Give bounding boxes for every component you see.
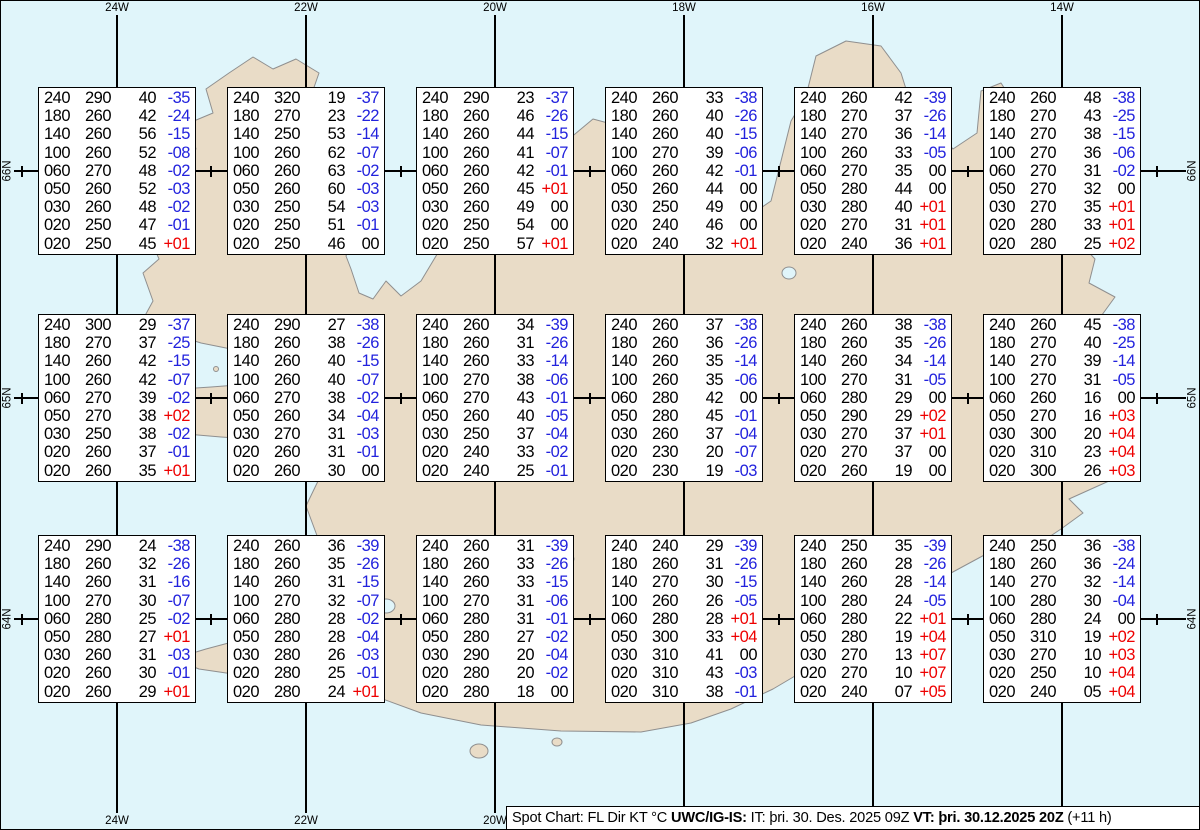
spot-row: 18027043-25 [989, 107, 1135, 125]
wind-dir-cell: 260 [841, 89, 886, 107]
temperature-cell: -16 [156, 573, 190, 591]
wind-speed-cell: 35 [130, 462, 156, 480]
latitude-label-right: 66N [1188, 160, 1199, 181]
flight-level-cell: 100 [44, 371, 85, 389]
flight-level-cell: 060 [233, 389, 274, 407]
wind-speed-cell: 32 [697, 235, 723, 253]
temperature-cell: -04 [345, 407, 379, 425]
spot-row: 03027035+01 [989, 198, 1135, 216]
wind-speed-cell: 38 [130, 407, 156, 425]
wind-dir-cell: 280 [274, 610, 319, 628]
wind-speed-cell: 53 [319, 125, 345, 143]
wind-dir-cell: 260 [274, 144, 319, 162]
spot-row: 24025036-38 [989, 537, 1135, 555]
flight-level-cell: 180 [422, 334, 463, 352]
wind-speed-cell: 20 [697, 443, 723, 461]
temperature-cell: -39 [723, 537, 757, 555]
spot-row: 05026052-03 [44, 180, 190, 198]
wind-speed-cell: 35 [886, 537, 912, 555]
wind-dir-cell: 270 [1030, 646, 1075, 664]
wind-speed-cell: 49 [697, 198, 723, 216]
wind-speed-cell: 30 [130, 592, 156, 610]
flight-level-cell: 020 [989, 235, 1030, 253]
spot-row: 02025051-01 [233, 216, 379, 234]
temperature-cell: -26 [912, 555, 946, 573]
spot-row: 14025053-14 [233, 125, 379, 143]
flight-level-cell: 180 [989, 334, 1030, 352]
flight-level-cell: 140 [233, 352, 274, 370]
wind-dir-cell: 310 [652, 664, 697, 682]
spot-row: 05026040-05 [422, 407, 568, 425]
wind-dir-cell: 260 [1030, 389, 1075, 407]
wind-speed-cell: 07 [886, 683, 912, 701]
wind-dir-cell: 310 [652, 683, 697, 701]
flight-level-cell: 030 [800, 425, 841, 443]
wind-speed-cell: 39 [130, 389, 156, 407]
temperature-cell: -37 [534, 89, 568, 107]
spot-table: 24029024-3818026032-2614026031-161002703… [38, 535, 196, 703]
flight-level-cell: 140 [44, 352, 85, 370]
spot-row: 05029029+02 [800, 407, 946, 425]
spot-row: 03027031-03 [233, 425, 379, 443]
wind-speed-cell: 38 [508, 371, 534, 389]
wind-dir-cell: 280 [841, 592, 886, 610]
temperature-cell: -39 [534, 316, 568, 334]
temperature-cell: -39 [912, 89, 946, 107]
spot-row: 18026035-26 [800, 334, 946, 352]
wind-dir-cell: 260 [85, 144, 130, 162]
flight-level-cell: 180 [422, 555, 463, 573]
wind-speed-cell: 40 [697, 125, 723, 143]
spot-row: 10028024-05 [800, 592, 946, 610]
flight-level-cell: 050 [233, 628, 274, 646]
temperature-cell: -15 [534, 125, 568, 143]
temperature-cell: -05 [1101, 371, 1135, 389]
wind-dir-cell: 260 [85, 180, 130, 198]
temperature-cell: +01 [1101, 216, 1135, 234]
flight-level-cell: 140 [611, 125, 652, 143]
wind-speed-cell: 28 [319, 628, 345, 646]
flight-level-cell: 240 [422, 316, 463, 334]
flight-level-cell: 060 [800, 389, 841, 407]
wind-speed-cell: 31 [508, 592, 534, 610]
spot-row: 02024033-02 [422, 443, 568, 461]
spot-row: 0202505400 [422, 216, 568, 234]
flight-level-cell: 100 [800, 144, 841, 162]
spot-row: 05026060-03 [233, 180, 379, 198]
temperature-cell: -15 [345, 352, 379, 370]
spot-row: 05031019+02 [989, 628, 1135, 646]
spot-row: 06026042-01 [611, 162, 757, 180]
wind-dir-cell: 260 [841, 555, 886, 573]
spot-row: 14026031-15 [233, 573, 379, 591]
spot-row: 02024036+01 [800, 235, 946, 253]
spot-row: 02031043-03 [611, 664, 757, 682]
wind-dir-cell: 230 [652, 462, 697, 480]
flight-level-cell: 030 [233, 198, 274, 216]
spot-row: 24026034-39 [422, 316, 568, 334]
flight-level-cell: 140 [800, 125, 841, 143]
wind-speed-cell: 44 [886, 180, 912, 198]
flight-level-cell: 050 [44, 407, 85, 425]
wind-dir-cell: 260 [463, 537, 508, 555]
temperature-cell: -26 [534, 334, 568, 352]
temperature-cell: -03 [723, 462, 757, 480]
flight-level-cell: 100 [989, 371, 1030, 389]
temperature-cell: -02 [156, 389, 190, 407]
spot-row: 24029040-35 [44, 89, 190, 107]
wind-dir-cell: 280 [652, 389, 697, 407]
half-degree-tick [589, 614, 591, 625]
wind-dir-cell: 270 [1030, 407, 1075, 425]
flight-level-cell: 140 [44, 125, 85, 143]
wind-dir-cell: 270 [1030, 352, 1075, 370]
temperature-cell: 00 [1101, 180, 1135, 198]
wind-speed-cell: 25 [508, 462, 534, 480]
wind-speed-cell: 34 [319, 407, 345, 425]
wind-dir-cell: 270 [1030, 371, 1075, 389]
flight-level-cell: 240 [422, 537, 463, 555]
wind-dir-cell: 240 [463, 462, 508, 480]
wind-speed-cell: 25 [1075, 235, 1101, 253]
wind-speed-cell: 31 [130, 573, 156, 591]
flight-level-cell: 180 [44, 334, 85, 352]
temperature-cell: +03 [1101, 462, 1135, 480]
temperature-cell: -26 [156, 555, 190, 573]
wind-dir-cell: 260 [463, 573, 508, 591]
spot-row: 02027031+01 [800, 216, 946, 234]
spot-row: 03025054-03 [233, 198, 379, 216]
temperature-cell: 00 [723, 216, 757, 234]
wind-speed-cell: 33 [508, 573, 534, 591]
wind-dir-cell: 260 [652, 316, 697, 334]
flight-level-cell: 240 [422, 89, 463, 107]
spot-row: 06027031-02 [989, 162, 1135, 180]
flight-level-cell: 030 [989, 198, 1030, 216]
flight-level-cell: 140 [611, 573, 652, 591]
wind-dir-cell: 250 [274, 216, 319, 234]
spot-table: 24029027-3818026038-2614026040-151002604… [227, 314, 385, 482]
wind-dir-cell: 240 [841, 683, 886, 701]
flight-level-cell: 020 [233, 683, 274, 701]
spot-row: 02026031-01 [233, 443, 379, 461]
flight-level-cell: 060 [422, 610, 463, 628]
flight-level-cell: 060 [611, 610, 652, 628]
flight-level-cell: 020 [611, 683, 652, 701]
wind-dir-cell: 250 [274, 125, 319, 143]
temperature-cell: -01 [723, 683, 757, 701]
half-degree-tick [1156, 614, 1158, 625]
wind-dir-cell: 270 [274, 425, 319, 443]
flight-level-cell: 140 [233, 125, 274, 143]
temperature-cell: -25 [156, 334, 190, 352]
flight-level-cell: 060 [422, 389, 463, 407]
half-degree-tick [400, 614, 402, 625]
temperature-cell: -38 [1101, 89, 1135, 107]
flight-level-cell: 140 [422, 352, 463, 370]
wind-dir-cell: 270 [85, 407, 130, 425]
half-degree-tick [400, 166, 402, 177]
flight-level-cell: 020 [233, 216, 274, 234]
temperature-cell: 00 [723, 198, 757, 216]
wind-dir-cell: 270 [1030, 107, 1075, 125]
temperature-cell: +01 [156, 462, 190, 480]
wind-dir-cell: 260 [652, 180, 697, 198]
temperature-cell: +03 [1101, 646, 1135, 664]
wind-speed-cell: 38 [130, 425, 156, 443]
wind-dir-cell: 270 [652, 573, 697, 591]
flight-level-cell: 140 [44, 573, 85, 591]
temperature-cell: -03 [156, 646, 190, 664]
flight-level-cell: 100 [44, 592, 85, 610]
flight-level-cell: 020 [422, 216, 463, 234]
flight-level-cell: 050 [800, 628, 841, 646]
spot-row: 24024029-39 [611, 537, 757, 555]
wind-speed-cell: 29 [130, 683, 156, 701]
wind-speed-cell: 19 [886, 628, 912, 646]
wind-speed-cell: 48 [130, 198, 156, 216]
temperature-cell: -14 [1101, 352, 1135, 370]
flight-level-cell: 180 [989, 107, 1030, 125]
wind-dir-cell: 230 [652, 443, 697, 461]
flight-level-cell: 060 [989, 610, 1030, 628]
spot-row: 06028022+01 [800, 610, 946, 628]
wind-speed-cell: 22 [886, 610, 912, 628]
temperature-cell: -26 [534, 555, 568, 573]
wind-speed-cell: 30 [319, 462, 345, 480]
wind-speed-cell: 31 [1075, 162, 1101, 180]
spot-row: 18026028-26 [800, 555, 946, 573]
flight-level-cell: 100 [800, 371, 841, 389]
spot-row: 18027037-26 [800, 107, 946, 125]
spot-table: 24026048-3818027043-2514027038-151002703… [983, 87, 1141, 255]
source-id: UWC/IG-IS: [671, 810, 747, 826]
wind-dir-cell: 300 [85, 316, 130, 334]
spot-row: 02025057+01 [422, 235, 568, 253]
spot-row: 02030026+03 [989, 462, 1135, 480]
temperature-cell: -35 [156, 89, 190, 107]
temperature-cell: +01 [912, 425, 946, 443]
temperature-cell: 00 [912, 162, 946, 180]
wind-speed-cell: 46 [508, 107, 534, 125]
wind-speed-cell: 60 [319, 180, 345, 198]
flight-level-cell: 020 [44, 664, 85, 682]
spot-row: 0202801800 [422, 683, 568, 701]
wind-dir-cell: 260 [85, 555, 130, 573]
wind-dir-cell: 260 [85, 646, 130, 664]
wind-speed-cell: 44 [697, 180, 723, 198]
spot-row: 06027038-02 [233, 389, 379, 407]
flight-level-cell: 180 [989, 555, 1030, 573]
longitude-label-top: 16W [861, 2, 885, 15]
wind-speed-cell: 35 [697, 352, 723, 370]
flight-level-cell: 240 [233, 316, 274, 334]
spot-row: 10026033-05 [800, 144, 946, 162]
flight-level-cell: 020 [44, 235, 85, 253]
spot-row: 14026040-15 [233, 352, 379, 370]
flight-level-cell: 060 [44, 610, 85, 628]
wind-dir-cell: 260 [85, 443, 130, 461]
temperature-cell: -07 [345, 592, 379, 610]
temperature-cell: -25 [1101, 107, 1135, 125]
flight-level-cell: 180 [233, 555, 274, 573]
wind-speed-cell: 19 [697, 462, 723, 480]
temperature-cell: -05 [912, 144, 946, 162]
spot-row: 24026033-38 [611, 89, 757, 107]
spot-row: 05028028-04 [233, 628, 379, 646]
temperature-cell: -01 [156, 216, 190, 234]
wind-speed-cell: 35 [697, 371, 723, 389]
wind-speed-cell: 42 [130, 352, 156, 370]
wind-dir-cell: 280 [1030, 216, 1075, 234]
wind-speed-cell: 42 [130, 371, 156, 389]
flight-level-cell: 020 [233, 462, 274, 480]
flight-level-cell: 180 [44, 107, 85, 125]
spot-row: 0202703700 [800, 443, 946, 461]
spot-table: 24026042-3918027037-2614027036-141002603… [794, 87, 952, 255]
wind-speed-cell: 33 [697, 628, 723, 646]
wind-dir-cell: 280 [1030, 235, 1075, 253]
wind-dir-cell: 280 [841, 389, 886, 407]
temperature-cell: -02 [534, 628, 568, 646]
wind-dir-cell: 290 [85, 89, 130, 107]
flight-level-cell: 030 [800, 198, 841, 216]
flight-level-cell: 240 [233, 89, 274, 107]
temperature-cell: 00 [345, 462, 379, 480]
wind-speed-cell: 28 [319, 610, 345, 628]
flight-level-cell: 020 [422, 462, 463, 480]
wind-dir-cell: 260 [274, 180, 319, 198]
temperature-cell: -02 [156, 610, 190, 628]
wind-speed-cell: 29 [886, 407, 912, 425]
longitude-label-top: 14W [1050, 2, 1074, 15]
spot-row: 10027031-06 [422, 592, 568, 610]
spot-row: 02023019-03 [611, 462, 757, 480]
wind-speed-cell: 31 [886, 371, 912, 389]
spot-row: 10026026-05 [611, 592, 757, 610]
spot-row: 05028027-02 [422, 628, 568, 646]
wind-dir-cell: 270 [274, 389, 319, 407]
temperature-cell: -02 [156, 198, 190, 216]
wind-speed-cell: 38 [886, 316, 912, 334]
spot-row: 02024025-01 [422, 462, 568, 480]
temperature-cell: 00 [912, 180, 946, 198]
wind-dir-cell: 260 [841, 334, 886, 352]
flight-level-cell: 100 [800, 592, 841, 610]
spot-row: 03028026-03 [233, 646, 379, 664]
wind-dir-cell: 290 [841, 407, 886, 425]
spot-row: 03030020+04 [989, 425, 1135, 443]
flight-level-cell: 240 [611, 89, 652, 107]
spot-row: 10027036-06 [989, 144, 1135, 162]
spot-row: 24026048-38 [989, 89, 1135, 107]
flight-level-cell: 020 [800, 235, 841, 253]
wind-dir-cell: 260 [463, 198, 508, 216]
half-degree-tick [589, 166, 591, 177]
wind-speed-cell: 24 [1075, 610, 1101, 628]
temperature-cell: 00 [723, 180, 757, 198]
spot-row: 02031023+04 [989, 443, 1135, 461]
spot-row: 0602601600 [989, 389, 1135, 407]
flight-level-cell: 240 [800, 89, 841, 107]
wind-speed-cell: 37 [886, 443, 912, 461]
wind-speed-cell: 27 [319, 316, 345, 334]
wind-dir-cell: 260 [1030, 555, 1075, 573]
wind-speed-cell: 42 [508, 162, 534, 180]
spot-row: 18026031-26 [422, 334, 568, 352]
longitude-label-top: 20W [483, 2, 507, 15]
flight-level-cell: 020 [44, 683, 85, 701]
wind-speed-cell: 35 [886, 334, 912, 352]
flight-level-cell: 240 [611, 537, 652, 555]
half-degree-tick [967, 393, 969, 404]
flight-level-cell: 030 [44, 646, 85, 664]
flight-level-cell: 180 [44, 555, 85, 573]
wind-dir-cell: 240 [652, 216, 697, 234]
time-offset: (+11 h) [1064, 810, 1112, 826]
wind-speed-cell: 36 [1075, 144, 1101, 162]
wind-dir-cell: 250 [841, 537, 886, 555]
wind-speed-cell: 47 [130, 216, 156, 234]
spot-row: 02031038-01 [611, 683, 757, 701]
wind-speed-cell: 16 [1075, 389, 1101, 407]
wind-dir-cell: 280 [463, 664, 508, 682]
wind-speed-cell: 32 [319, 592, 345, 610]
wind-dir-cell: 270 [1030, 334, 1075, 352]
wind-speed-cell: 29 [130, 316, 156, 334]
wind-dir-cell: 260 [274, 462, 319, 480]
temperature-cell: +02 [156, 407, 190, 425]
spot-row: 02026029+01 [44, 683, 190, 701]
wind-speed-cell: 48 [130, 162, 156, 180]
flight-level-cell: 180 [233, 334, 274, 352]
flight-level-cell: 140 [800, 352, 841, 370]
temperature-cell: +04 [723, 628, 757, 646]
spot-row: 14026042-15 [44, 352, 190, 370]
temperature-cell: -07 [345, 371, 379, 389]
spot-row: 05028027+01 [44, 628, 190, 646]
half-degree-tick [210, 614, 212, 625]
latitude-label-left: 65N [3, 387, 14, 408]
spot-table: 24025035-3918026028-2614026028-141002802… [794, 535, 952, 703]
wind-speed-cell: 52 [130, 180, 156, 198]
flight-level-cell: 020 [611, 216, 652, 234]
spot-table: 24025036-3818026036-2414027032-141002803… [983, 535, 1141, 703]
wind-speed-cell: 32 [1075, 573, 1101, 591]
spot-row: 18027023-22 [233, 107, 379, 125]
spot-table: 24026033-3818026040-2614026040-151002703… [605, 87, 763, 255]
flight-level-cell: 180 [800, 107, 841, 125]
spot-table: 24026034-3918026031-2614026033-141002703… [416, 314, 574, 482]
wind-dir-cell: 270 [841, 443, 886, 461]
wind-speed-cell: 23 [508, 89, 534, 107]
temperature-cell: -03 [345, 425, 379, 443]
wind-speed-cell: 20 [508, 664, 534, 682]
temperature-cell: +02 [1101, 235, 1135, 253]
flight-level-cell: 100 [611, 592, 652, 610]
wind-speed-cell: 37 [130, 334, 156, 352]
wind-dir-cell: 250 [1030, 537, 1075, 555]
spot-row: 24026036-39 [233, 537, 379, 555]
spot-table: 24024029-3918026031-2614027030-151002602… [605, 535, 763, 703]
temperature-cell: -15 [1101, 125, 1135, 143]
wind-speed-cell: 40 [886, 198, 912, 216]
wind-speed-cell: 43 [697, 664, 723, 682]
flight-level-cell: 030 [44, 198, 85, 216]
wind-dir-cell: 250 [463, 425, 508, 443]
flight-level-cell: 100 [233, 371, 274, 389]
wind-speed-cell: 32 [130, 555, 156, 573]
